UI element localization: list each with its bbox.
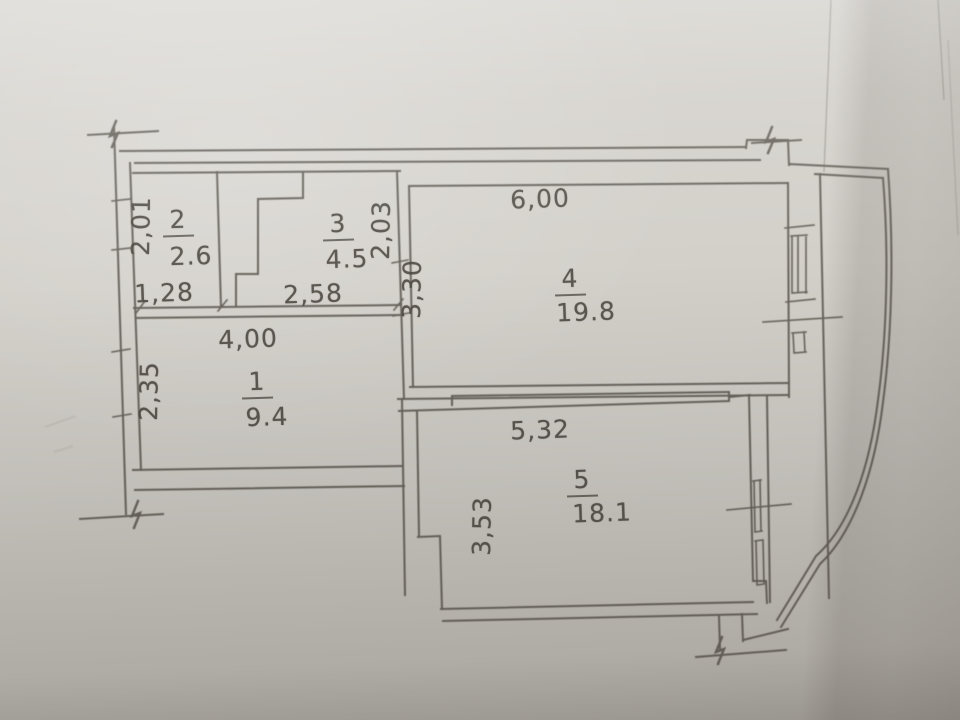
balcony-window-wall [820,174,829,598]
wall-room4-right [788,183,789,397]
balcony-top-outer [789,164,888,169]
paper-crease [824,0,831,172]
window-room4 [763,225,842,353]
dim-room4-width: 6,00 [510,185,571,212]
wall-room5-right-outer [767,397,770,602]
dim-room5-width: 5,32 [510,416,571,443]
wall-room5-top-inner [399,401,729,411]
room-1-area: 9.4 [245,404,289,430]
paper-edge-line-2 [948,40,958,235]
balcony-top-inner [815,174,883,178]
wall-room5-left [417,411,419,535]
paper-edge-line [938,0,944,100]
dim-room5-height: 3,53 [469,496,495,556]
dim-room1-height: 2,35 [136,361,162,421]
wall-room1-bottom-lower [135,486,404,490]
axis-break-marker-bottom-left [80,501,163,528]
dim-room2-height: 2,01 [128,196,154,256]
dim-room4-height: 3,30 [399,259,425,319]
wall-corridor-left [402,400,405,595]
room-2-area: 2.6 [169,243,213,269]
axis-break-marker-top-left [88,121,158,147]
room-3-area: 4.5 [325,246,369,272]
wall-room5-bottom-inner [441,602,753,609]
dim-room1-width: 4,00 [218,325,279,352]
wall-room5-right-inner [749,395,753,581]
wall-room5-topright-jog [729,392,750,401]
wall-top-inner [135,160,760,163]
window-room5 [727,480,791,585]
room-2-number: 2 [162,206,194,237]
wall-room2-right [217,172,221,307]
wall-left-outer [114,126,126,514]
wall-rooms23-top [133,171,400,173]
wall-room5-bottom-outer [443,614,757,621]
axis-break-marker-bottom-right [696,637,786,664]
room-1-number: 1 [241,368,273,399]
wall-room4-bottom-inner [410,383,789,387]
dim-room2-width: 1,28 [134,279,195,306]
wall-room5-step [418,536,442,609]
floorplan-photo: 2,01 2 2.6 1,28 3 4.5 2,03 2,58 6,00 3,3… [0,0,960,720]
room-5-number: 5 [566,466,598,497]
wall-hall-band-lower [136,315,402,318]
dim-room3-width: 2,58 [283,280,344,307]
wall-room4-top [409,183,788,186]
pencil-smudge [45,416,76,452]
dim-room3-height: 2,03 [368,200,394,260]
room-4-area: 19.8 [556,298,617,325]
wall-top-outer [120,147,746,151]
wall-room1-bottom-upper [133,466,403,470]
room-5-area: 18.1 [572,499,633,526]
balcony-curve-inner [777,178,886,620]
room-3-number: 3 [322,210,354,241]
room-4-number: 4 [554,265,586,296]
